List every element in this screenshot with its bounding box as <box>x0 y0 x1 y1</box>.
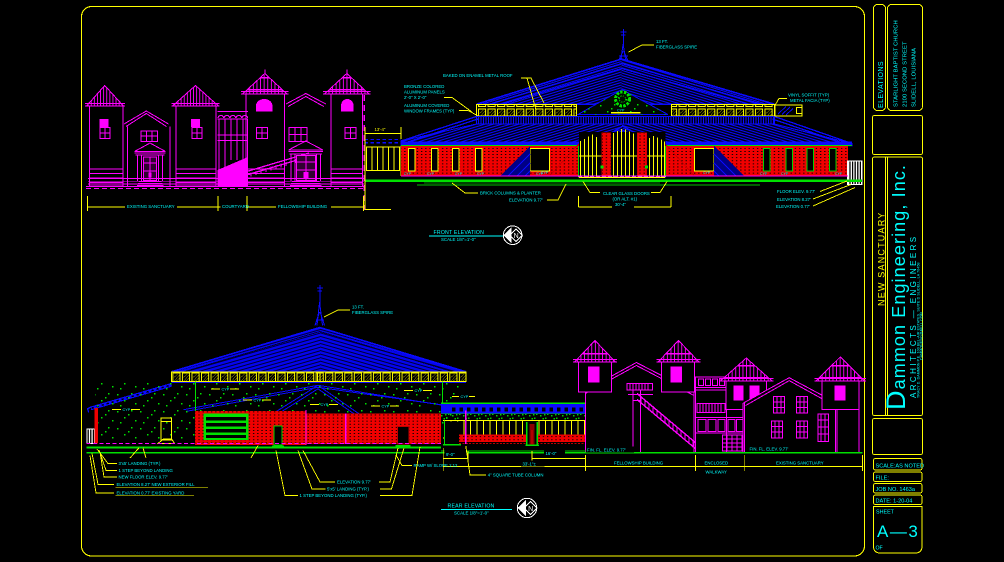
svg-text:VINYL SOFFIT (TYP): VINYL SOFFIT (TYP) <box>788 93 830 98</box>
svg-text:CYP: CYP <box>404 172 412 176</box>
svg-text:1 STEP BEYOND LANDING: 1 STEP BEYOND LANDING <box>119 468 174 473</box>
svg-text:CYP: CYP <box>321 403 329 407</box>
svg-text:5'x5' LANDING (TYP.): 5'x5' LANDING (TYP.) <box>327 486 369 491</box>
svg-text:EXISTING SANCTUARY: EXISTING SANCTUARY <box>776 461 824 466</box>
svg-text:CYP: CYP <box>835 172 843 176</box>
svg-text:A—3: A—3 <box>877 522 919 541</box>
svg-text:RAMP W/ SLOPE 1:12: RAMP W/ SLOPE 1:12 <box>414 463 458 468</box>
svg-text:JOB NO. 1463a: JOB NO. 1463a <box>876 487 916 493</box>
svg-text:SLIDELL, LOUISIANA: SLIDELL, LOUISIANA <box>912 48 918 107</box>
svg-text:CYP: CYP <box>703 171 711 175</box>
svg-text:ENCLOSED: ENCLOSED <box>705 461 729 466</box>
svg-text:BRICK COLUMNS & PLANTER: BRICK COLUMNS & PLANTER <box>480 191 541 196</box>
svg-text:BAKED ON ENAMEL METAL ROOF: BAKED ON ENAMEL METAL ROOF <box>443 73 513 78</box>
svg-text:CYP: CYP <box>455 172 463 176</box>
svg-text:N: N <box>514 233 519 240</box>
svg-text:N: N <box>528 506 533 513</box>
svg-text:ELEVATION 9.77': ELEVATION 9.77' <box>337 480 371 485</box>
svg-text:WALKWAY: WALKWAY <box>706 470 727 475</box>
svg-text:FLOOR ELEV. 9.77': FLOOR ELEV. 9.77' <box>777 189 815 194</box>
svg-text:BRONZE COLORED: BRONZE COLORED <box>404 84 444 89</box>
svg-text:NEW SANCTUARY: NEW SANCTUARY <box>876 212 886 306</box>
svg-text:ELEVATIONS: ELEVATIONS <box>878 61 885 108</box>
svg-text:CYP: CYP <box>617 109 625 113</box>
svg-text:3'x5' LANDING (TYP.): 3'x5' LANDING (TYP.) <box>119 461 161 466</box>
svg-text:FELLOWSHIP BUILDING: FELLOWSHIP BUILDING <box>278 204 328 209</box>
svg-text:METAL FACIA (TYP): METAL FACIA (TYP) <box>790 98 830 103</box>
svg-text:2'-0" X 2'-0": 2'-0" X 2'-0" <box>404 95 427 100</box>
svg-text:4" SQUARE TUBE COLUMN: 4" SQUARE TUBE COLUMN <box>488 473 544 478</box>
svg-text:(OR ALT. #1): (OR ALT. #1) <box>613 196 638 201</box>
svg-text:ELEVATION 0.77': ELEVATION 0.77' <box>776 204 810 209</box>
svg-text:STARLIGHT BAPTIST CHURCH: STARLIGHT BAPTIST CHURCH <box>894 20 900 107</box>
svg-text:13 FT.: 13 FT. <box>656 39 668 44</box>
svg-text:CYP: CYP <box>415 389 423 393</box>
svg-text:SCALE 1/8"=1'-0": SCALE 1/8"=1'-0" <box>454 511 489 516</box>
svg-text:COURTYARD: COURTYARD <box>222 204 249 209</box>
svg-text:CYP: CYP <box>477 172 485 176</box>
svg-text:ELEVATION 8.27' NEW EXTERIOR F: ELEVATION 8.27' NEW EXTERIOR FILL <box>117 482 196 487</box>
svg-text:SCALE 1/8"=1'-0": SCALE 1/8"=1'-0" <box>441 237 476 242</box>
svg-text:ALUMINUM COVERED: ALUMINUM COVERED <box>404 103 449 108</box>
svg-text:CYP: CYP <box>427 172 435 176</box>
svg-text:CYP: CYP <box>760 172 768 176</box>
svg-text:FIN. FL. ELEV. 9.77': FIN. FL. ELEV. 9.77' <box>750 447 789 452</box>
svg-text:16'-0": 16'-0" <box>546 451 557 456</box>
svg-text:ELEVATION 8.27': ELEVATION 8.27' <box>777 197 811 202</box>
svg-text:FIN. FL. ELEV. 9.77': FIN. FL. ELEV. 9.77' <box>587 448 626 453</box>
svg-text:SHEET: SHEET <box>876 510 895 516</box>
svg-text:CYP: CYP <box>123 408 131 412</box>
svg-text:13 FT.: 13 FT. <box>352 305 364 310</box>
svg-text:CYP: CYP <box>222 388 230 392</box>
svg-text:WINDOW FRAMES (TYP): WINDOW FRAMES (TYP) <box>404 109 455 114</box>
svg-text:ELEVATION 0.77' EXISTING YARD: ELEVATION 0.77' EXISTING YARD <box>117 490 185 495</box>
svg-text:NEW FLOOR ELEV. 9.77': NEW FLOOR ELEV. 9.77' <box>119 475 169 480</box>
svg-text:DAMMONENG@BELL.COM: DAMMONENG@BELL.COM <box>920 312 924 360</box>
svg-text:CYP: CYP <box>541 171 549 175</box>
svg-text:9'-0": 9'-0" <box>446 452 455 457</box>
svg-text:FELLOWSHIP BUILDING: FELLOWSHIP BUILDING <box>614 461 664 466</box>
svg-text:ELEVATION 9.77': ELEVATION 9.77' <box>509 198 543 203</box>
svg-text:FRONT ELEVATION: FRONT ELEVATION <box>434 230 485 236</box>
svg-text:13'-4": 13'-4" <box>375 127 386 132</box>
svg-text:OF: OF <box>876 546 883 552</box>
svg-text:DATE: 1-20-04: DATE: 1-20-04 <box>876 499 913 505</box>
svg-text:CYP: CYP <box>461 395 469 399</box>
svg-text:FIBERGLASS SPIRE: FIBERGLASS SPIRE <box>352 310 393 315</box>
svg-text:CYP: CYP <box>781 172 789 176</box>
svg-text:30'-4": 30'-4" <box>615 202 626 207</box>
svg-text:33'-1"±: 33'-1"± <box>523 462 537 467</box>
svg-text:SCALE:AS NOTED: SCALE:AS NOTED <box>876 463 925 469</box>
svg-text:CYP: CYP <box>382 405 390 409</box>
svg-text:FILE:: FILE: <box>876 476 890 482</box>
svg-text:EXISTING SANCTUARY: EXISTING SANCTUARY <box>127 204 175 209</box>
svg-text:CYP: CYP <box>254 399 262 403</box>
svg-text:CLEAR GLASS DOORS: CLEAR GLASS DOORS <box>603 191 650 196</box>
svg-text:FIBERGLASS SPIRE: FIBERGLASS SPIRE <box>656 45 697 50</box>
svg-text:REAR ELEVATION: REAR ELEVATION <box>448 504 495 510</box>
svg-text:1 STEP BEYOND LANDING (TYP.): 1 STEP BEYOND LANDING (TYP.) <box>300 493 368 498</box>
svg-text:ALUMINUM PANELS: ALUMINUM PANELS <box>404 90 445 95</box>
svg-text:2100 SECOND STREET: 2100 SECOND STREET <box>903 41 909 107</box>
